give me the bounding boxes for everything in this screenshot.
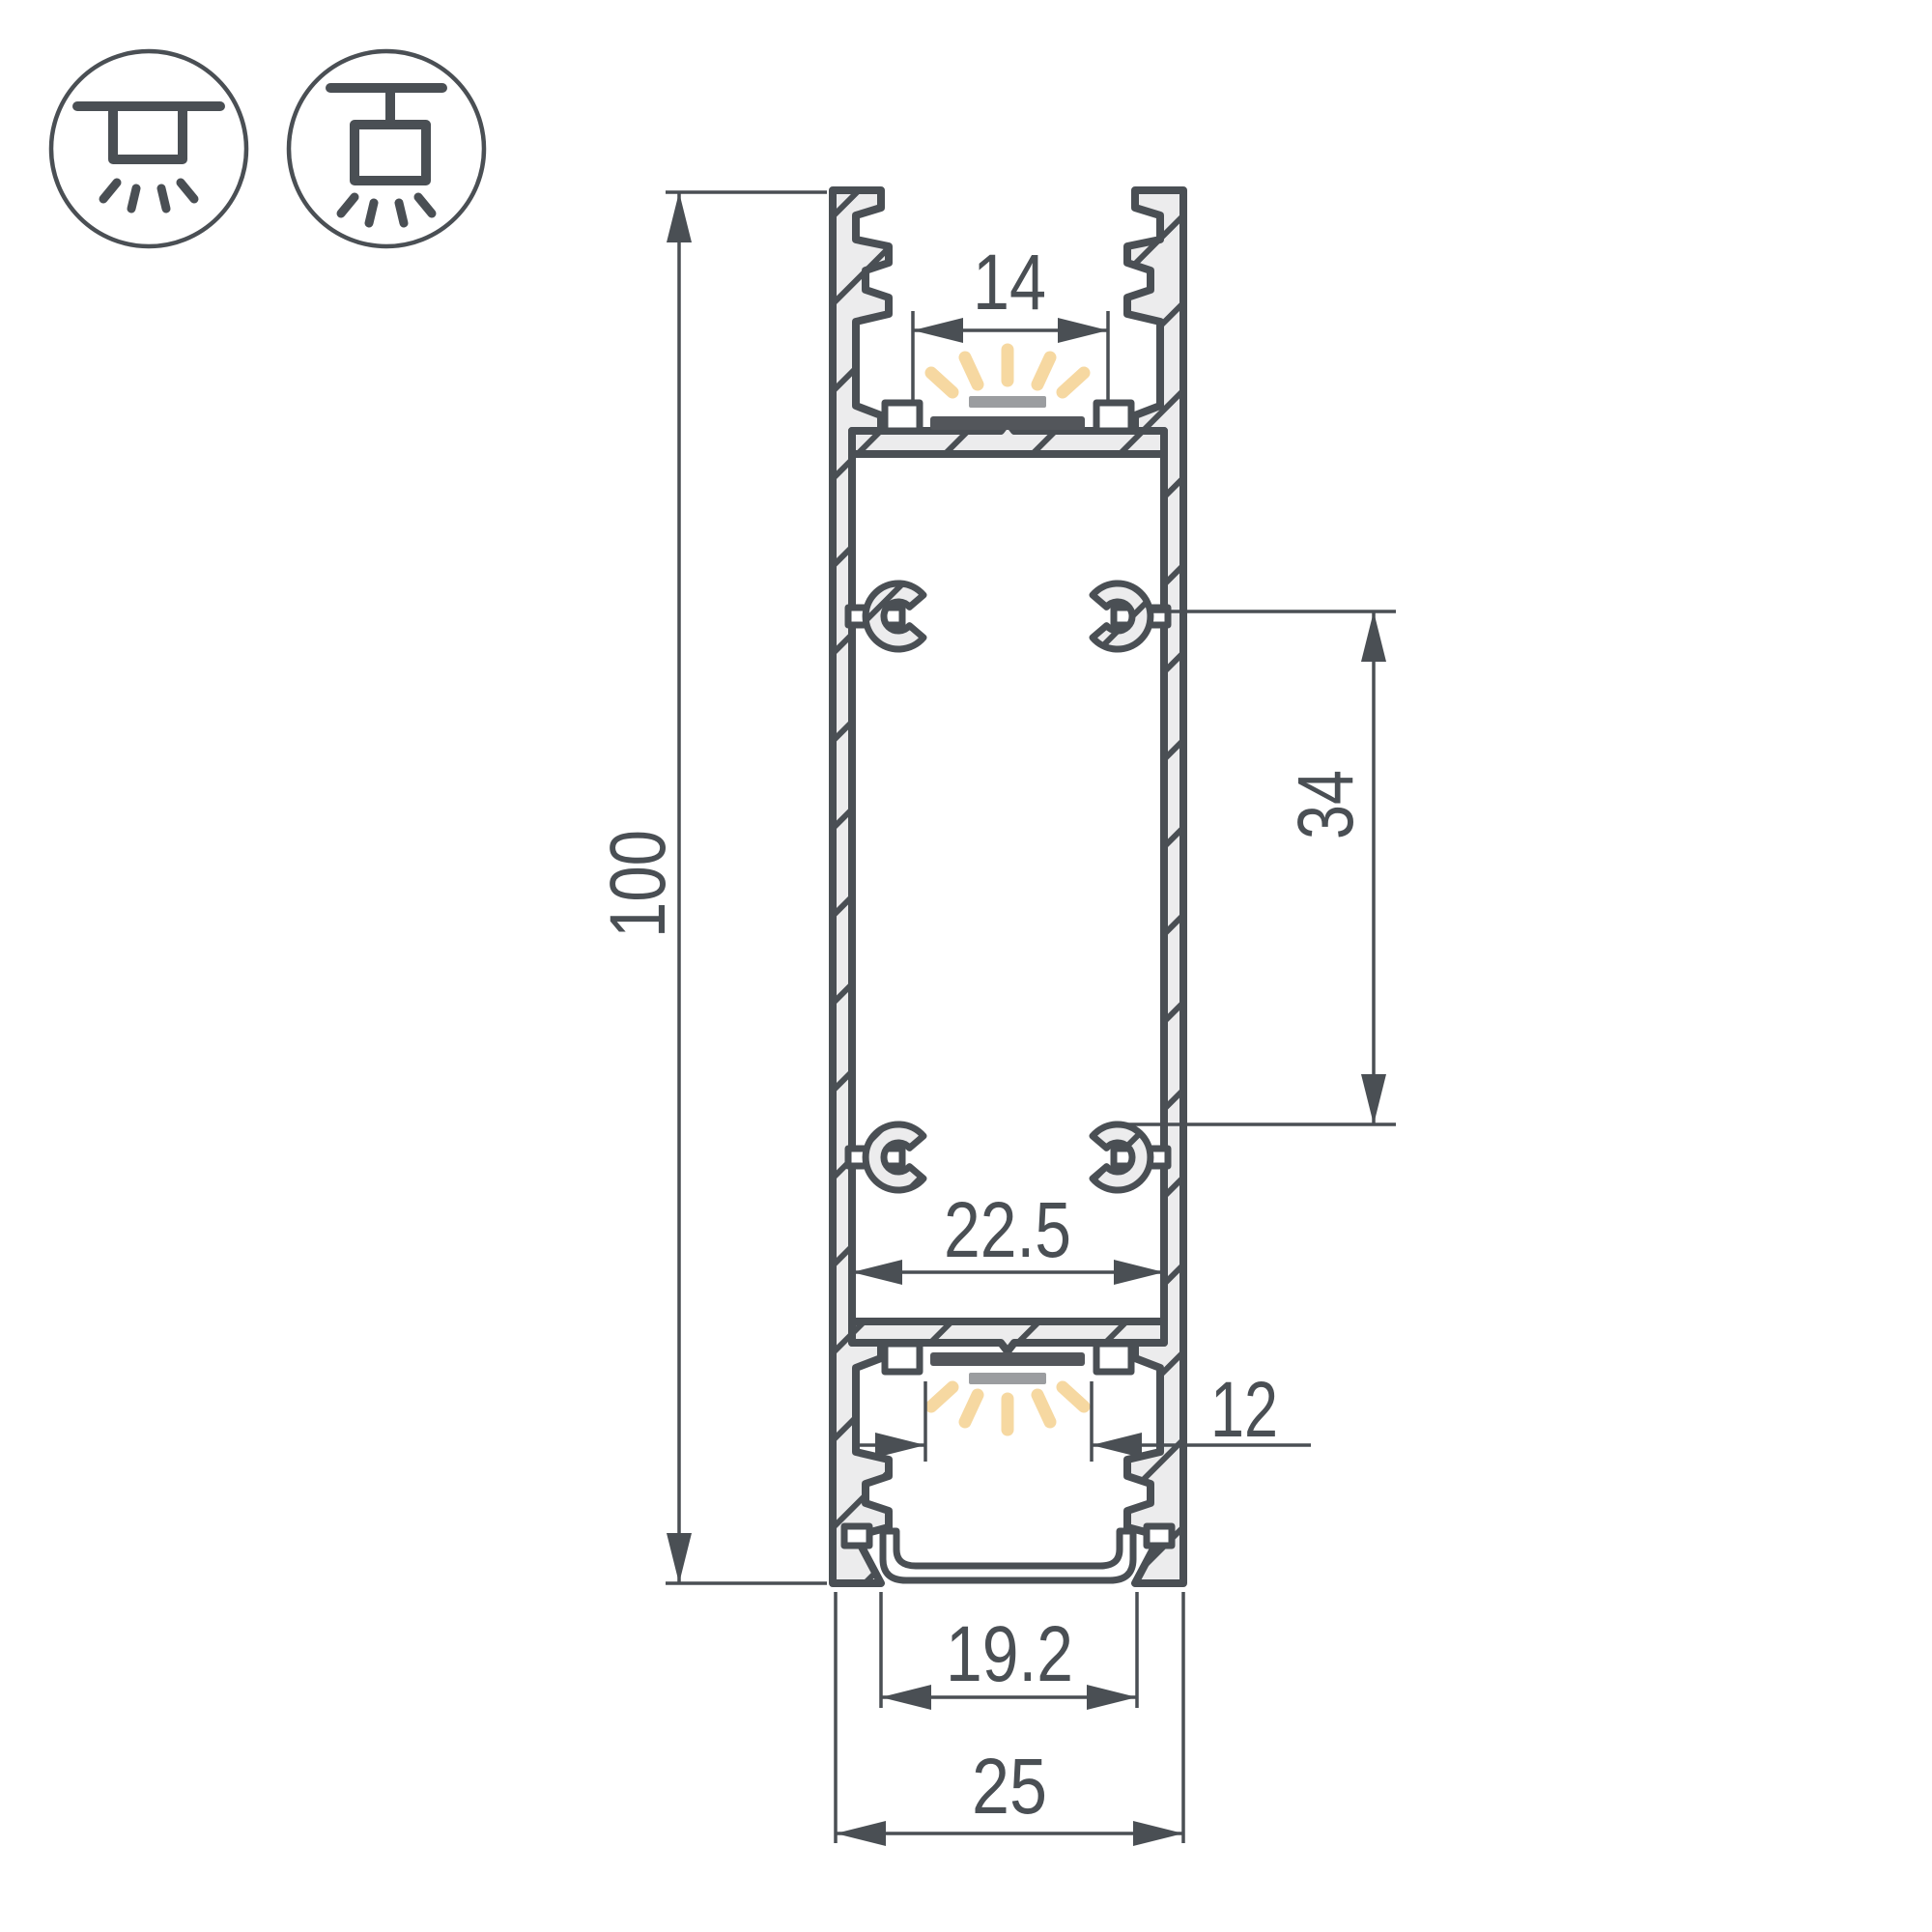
right-wall [1127, 190, 1183, 1583]
recessed-box [113, 106, 183, 159]
profile-drawing-canvas: 100 14 34 22.5 12 [0, 0, 1932, 1932]
dim-label-19-2: 19.2 [946, 1610, 1073, 1698]
foot-notch-left [844, 1526, 869, 1546]
screw-bosses [848, 583, 1168, 1190]
recessed-mount-icon [51, 51, 246, 246]
dim-label-22-5: 22.5 [944, 1186, 1071, 1274]
dim-label-14: 14 [973, 239, 1046, 327]
left-wall [833, 190, 889, 1583]
tslot-bottom-left [885, 1344, 920, 1372]
light-rays-top [931, 350, 1084, 392]
diffuser-plate-top [969, 396, 1046, 408]
profile-cross-section [833, 190, 1183, 1583]
diffuser-plate-bottom [969, 1373, 1046, 1384]
icon-circle [51, 51, 246, 246]
icon-circle [289, 51, 484, 246]
led-strip-top [930, 416, 1085, 430]
pendant-mount-icon [289, 51, 484, 246]
mount-type-icons [51, 51, 484, 246]
light-rays-icon [103, 183, 194, 209]
bottom-led-unit [930, 1352, 1085, 1430]
bottom-diffuser-cover [883, 1531, 1133, 1580]
dim-inner-width: 22.5 [852, 1186, 1164, 1285]
dim-diffuser-width: 19.2 [881, 1592, 1137, 1710]
light-rays-icon [341, 197, 432, 223]
foot-notch-right [1147, 1526, 1172, 1546]
dim-label-34: 34 [1282, 770, 1370, 839]
dim-label-25: 25 [972, 1743, 1047, 1831]
led-strip-bottom [930, 1352, 1085, 1366]
tslot-top-right [1096, 403, 1131, 431]
dim-overall-height: 100 [594, 192, 827, 1583]
dim-label-12: 12 [1210, 1366, 1278, 1454]
tslot-bottom-right [1096, 1344, 1131, 1372]
light-rays-bottom [931, 1387, 1084, 1430]
dim-label-100: 100 [594, 830, 682, 938]
pendant-box [355, 125, 426, 181]
tslot-top-left [885, 403, 920, 431]
top-led-unit [930, 350, 1085, 430]
dim-bottom-led-width: 12 [860, 1366, 1311, 1462]
